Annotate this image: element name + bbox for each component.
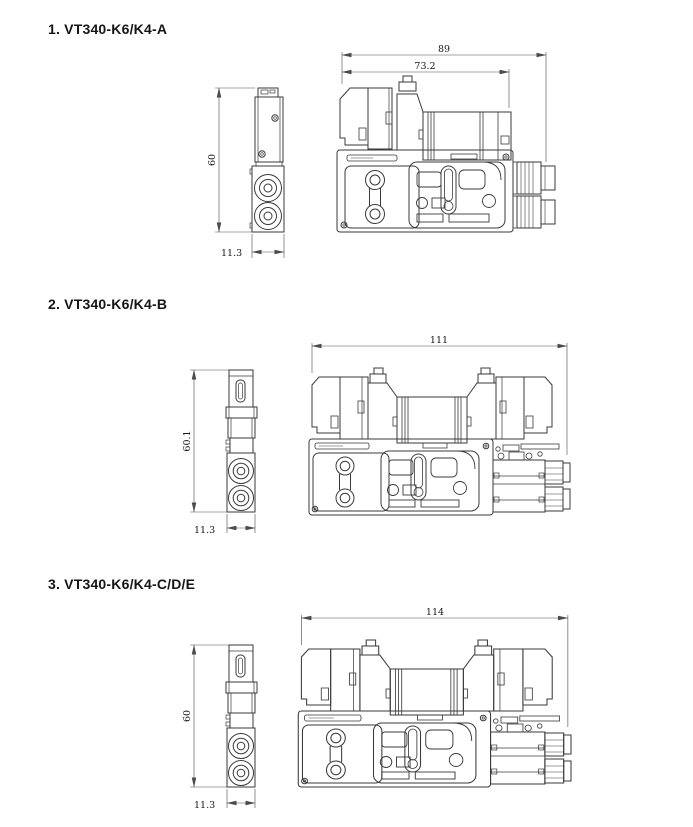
height-dimension-label: 60 [207, 154, 218, 166]
section-3-front-view-drawing: 114 [292, 605, 602, 800]
section-1-front-view-drawing: 89 73.2 [333, 42, 568, 242]
section-2-front-view-drawing: 111 [303, 333, 593, 528]
section-2-side-view-drawing: 60.1 11.3 [180, 330, 280, 545]
height-dimension-label: 60 [182, 710, 193, 722]
technical-drawing-page: 1. VT340-K6/K4-A 60 11.3 89 73.2 2. VT34… [0, 0, 693, 827]
width-dimension-label: 11.3 [221, 248, 242, 259]
overall-width-dimension-label: 89 [438, 44, 450, 55]
section-3-side-view-drawing: 60 11.3 [180, 605, 280, 820]
height-dimension-label: 60.1 [182, 430, 193, 451]
overall-width-dimension-label: 114 [426, 607, 444, 618]
width-dimension-label: 11.3 [194, 800, 215, 811]
section-3-title: 3. VT340-K6/K4-C/D/E [48, 576, 195, 592]
section-2-title: 2. VT340-K6/K4-B [48, 296, 167, 312]
overall-width-dimension-label: 111 [430, 335, 448, 346]
section-1-title: 1. VT340-K6/K4-A [48, 21, 167, 37]
width-dimension-label: 11.3 [194, 525, 215, 536]
section-1-side-view-drawing: 60 11.3 [205, 55, 305, 270]
body-width-dimension-label: 73.2 [414, 61, 435, 72]
